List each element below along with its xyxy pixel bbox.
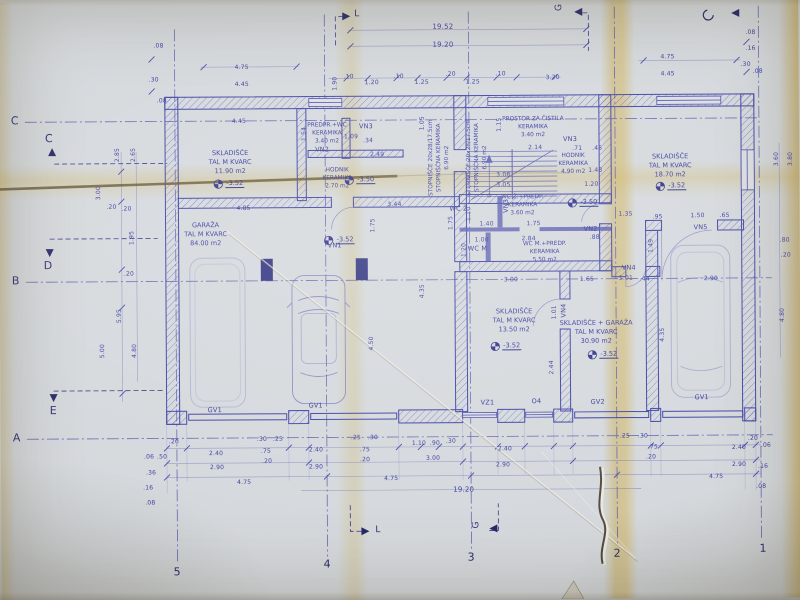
dim: 3.60 — [774, 152, 781, 166]
dim: .45 — [592, 146, 602, 153]
dim: .75 — [261, 449, 271, 456]
dim: 1.00 — [475, 237, 489, 244]
opening-tag-vn1: VN1 — [328, 242, 342, 249]
dim: 3.20 — [546, 75, 560, 82]
dim: .95 — [652, 214, 662, 221]
dim: .20 — [748, 436, 758, 443]
dim: .71 — [572, 146, 582, 153]
dim: 1.90 — [332, 77, 339, 91]
dim: .30 — [446, 439, 456, 446]
dim: 3.05 — [496, 182, 510, 189]
level-marker: -3.50 — [567, 198, 598, 208]
dim: 2.90 — [210, 465, 224, 472]
dim: 4.45 — [661, 71, 675, 78]
room-floor: STOPNIŠČNA KERAMIKA — [473, 108, 482, 208]
dim: 3.00 — [504, 277, 518, 284]
blueprint-photo: C B A C D E 5 4 3 2 1 L G L G SKLADIŠČE … — [0, 0, 800, 600]
dim: .08 — [153, 43, 163, 50]
dim: 1.09 — [344, 134, 358, 141]
room-area: 3.60 m2 — [489, 209, 555, 218]
room-name: GARAŽA — [168, 221, 244, 231]
dim: 1.50 — [690, 213, 704, 220]
room-name: SKLADIŠČE — [193, 149, 267, 159]
dim: 2.90 — [309, 464, 323, 471]
dim: .08 — [745, 30, 755, 37]
car-outline-right — [671, 245, 731, 397]
dim: .20 — [446, 72, 456, 79]
room-skladisce-1350: SKLADIŠČE TAL M KVARC 13.50 m2 — [477, 307, 551, 335]
dim: .20 — [781, 253, 791, 260]
level-marker: -3.52 — [490, 341, 521, 351]
dim-total: 19.52 — [432, 24, 453, 32]
room-floor: TAL M KVARC — [632, 161, 708, 171]
dim: 2.90 — [496, 462, 510, 469]
dim: .08 — [157, 98, 167, 105]
opening-tag-vn4: VN4 — [622, 265, 636, 272]
dim: .75 — [648, 444, 658, 451]
dim: 1.95 — [129, 231, 136, 245]
dim-total: 19.20 — [432, 42, 453, 50]
dim: 4.75 — [709, 474, 723, 481]
dim: 2.84 — [522, 236, 536, 243]
dim: .34 — [363, 138, 373, 145]
section-label-l-top: L — [354, 10, 359, 19]
dim: .16 — [143, 486, 153, 493]
dim: .80 — [780, 238, 790, 245]
paper-creases — [0, 172, 638, 565]
level-icon — [490, 341, 500, 351]
dim: 1.20 — [461, 243, 468, 257]
level-value: -3.52 — [599, 350, 618, 359]
dim: 3.00 — [96, 186, 103, 200]
opening-tag-o4: O4 — [532, 398, 542, 405]
room-name: SKLADIŠČE + GARAŽA — [548, 319, 644, 329]
dim: 1.20 — [584, 182, 598, 189]
grid-col-1: 1 — [759, 543, 766, 554]
dim: 3.44 — [387, 202, 401, 209]
room-floor: TAL M KVARC — [168, 230, 244, 240]
dim: .30 — [368, 435, 378, 442]
room-area: 30.90 m2 — [548, 337, 644, 347]
dim: .06 — [144, 455, 154, 462]
dim: 1.75 — [370, 218, 377, 232]
dim: 4.35 — [420, 284, 427, 298]
room-stopnisce-left: STOPNIŠČE 20x28/17.5cm STOPNIŠČNA KERAMI… — [427, 108, 452, 208]
dim: 2.90 — [704, 276, 718, 283]
dim: 1.10 — [466, 207, 473, 221]
dim: .25 — [351, 435, 361, 442]
dim: 4.75 — [237, 480, 251, 487]
room-floor: TAL M KVARC — [477, 316, 551, 326]
dim: 2.40 — [498, 446, 512, 453]
dim: .65 — [719, 213, 729, 220]
dim: .16 — [745, 46, 755, 53]
dim: 3.80 — [788, 152, 795, 166]
opening-tag-vn2: VN2 — [584, 226, 598, 233]
dim: 1.75 — [527, 221, 541, 228]
dim: .20 — [121, 207, 131, 214]
structural-columns — [261, 258, 368, 281]
dim: 1.35 — [618, 212, 632, 219]
dim: 4.50 — [369, 336, 376, 350]
dim: 1.40 — [480, 221, 494, 228]
dim: 2.90 — [732, 462, 746, 469]
dim: 1.05 — [420, 116, 427, 130]
room-skladisce-1190: SKLADIŠČE TAL M KVARC 11.90 m2 — [193, 149, 267, 177]
dim: .30 — [257, 437, 267, 444]
level-icon — [655, 181, 665, 191]
dim: 2.14 — [528, 145, 542, 152]
room-area: 18.70 m2 — [632, 170, 708, 180]
section-label-d: D — [44, 260, 53, 271]
dim-total: 19.20 — [453, 487, 474, 495]
dim: 4.85 — [236, 206, 250, 213]
section-label-l-bottom: L — [375, 526, 380, 535]
section-label-e: E — [50, 405, 57, 416]
dim: 5.00 — [100, 344, 107, 358]
level-icon — [567, 198, 577, 208]
room-area: 13.50 m2 — [477, 325, 551, 335]
level-value: -3.52 — [667, 182, 686, 191]
room-skladisce-garaza: SKLADIŠČE + GARAŽA TAL M KVARC 30.90 m2 — [548, 319, 644, 347]
dim: .30 — [638, 433, 648, 440]
dim: .90 — [430, 441, 440, 448]
dim: .10 — [344, 74, 354, 81]
section-label-g-bottom: G — [472, 522, 481, 529]
dim: 1.10 — [412, 441, 426, 448]
dim: 4.45 — [235, 82, 249, 89]
dim: 3.08 — [496, 172, 510, 179]
dim: 2.44 — [549, 360, 556, 374]
dim: 2.85 — [115, 148, 122, 162]
opening-tag-vn3: VN3 — [563, 136, 577, 143]
dim: 4.75 — [661, 54, 675, 61]
grid-col-4: 4 — [324, 558, 331, 569]
dim: .44 — [640, 276, 650, 283]
dim: .08 — [753, 69, 763, 76]
level-marker: -3.52 — [213, 179, 244, 189]
dim: .88 — [590, 235, 600, 242]
dim: 1.25 — [415, 80, 429, 87]
floorplan-linework — [0, 0, 800, 600]
dim: 4.35 — [660, 328, 667, 342]
opening-tag-vz1: VZ1 — [481, 399, 495, 406]
opening-tag-gv2: GV2 — [591, 399, 605, 406]
dim: 1.15 — [497, 118, 504, 132]
dim: 1.01 — [619, 276, 633, 283]
section-label-c: C — [45, 133, 53, 144]
walls — [165, 94, 756, 425]
dim: 1.20 — [365, 80, 379, 87]
dim: .10 — [496, 71, 506, 78]
dim: .20 — [169, 439, 179, 446]
dim: .08 — [145, 500, 155, 507]
level-marker: -3.50 — [344, 175, 375, 185]
dim: .06 — [761, 443, 771, 450]
room-area: 84.00 m2 — [168, 239, 244, 249]
opening-tag-gv1: GV1 — [208, 407, 222, 414]
dim: .25 — [620, 434, 630, 441]
level-value: -3.50 — [356, 176, 375, 185]
dim: .25 — [273, 437, 283, 444]
room-area: 11.90 m2 — [193, 167, 267, 177]
dim: 4.80 — [132, 344, 139, 358]
grid-col-5: 5 — [174, 566, 181, 577]
dim: 1.25 — [466, 80, 480, 87]
dim: 1.48 — [588, 168, 602, 175]
room-name: PROSTOR ZA ČISTILA — [491, 115, 575, 124]
dim: .36 — [146, 470, 156, 477]
room-floor: STOPNIŠČNA KERAMIKA — [435, 108, 444, 208]
dim: .75 — [360, 447, 370, 454]
dim: 2.40 — [732, 445, 746, 452]
dim: 4.75 — [235, 65, 249, 72]
dim: 1.75 — [448, 216, 455, 230]
opening-tag-vn3: VN3 — [503, 199, 510, 213]
dim: .30 — [149, 77, 159, 84]
dim: 3.00 — [426, 456, 440, 463]
dim: 2.65 — [131, 148, 138, 162]
dim: .50 — [157, 454, 167, 461]
room-garaza: GARAŽA TAL M KVARC 84.00 m2 — [168, 221, 244, 249]
dim: 4.75 — [384, 476, 398, 483]
room-skladisce-1870: SKLADIŠČE TAL M KVARC 18.70 m2 — [632, 152, 708, 180]
room-stopnisce-right: STOPNIŠČE 20x28/17.5cm STOPNIŠČNA KERAMI… — [465, 107, 490, 207]
room-area: 5.50 m2 — [510, 256, 580, 265]
room-wc-moski: WC M.+PREDP. KERAMIKA 5.50 m2 — [510, 240, 580, 265]
dim: 4.80 — [780, 308, 787, 322]
dim: 2.49 — [370, 152, 384, 159]
section-label-g-top: G — [555, 4, 564, 11]
dim: 1.65 — [580, 277, 594, 284]
dim: .20 — [124, 272, 134, 279]
dim: 4.45 — [232, 119, 246, 126]
dim: 1.49 — [648, 239, 655, 253]
grid-col-2: 2 — [614, 548, 621, 559]
car-outline-main — [287, 275, 351, 403]
room-floor: TAL M KVARC — [193, 158, 267, 168]
dim: .16 — [758, 464, 768, 471]
level-value: -3.50 — [579, 199, 598, 208]
dim: 1.54 — [302, 127, 309, 141]
level-value: -3.52 — [502, 342, 521, 351]
blueprint-paper: C B A C D E 5 4 3 2 1 L G L G SKLADIŠČE … — [0, 0, 800, 600]
room-wc-zenske: WC Ž.+PREDP. KERAMIKA 3.60 m2 — [489, 193, 555, 218]
opening-tag-gv1: GV1 — [309, 402, 323, 409]
dim: 2.40 — [209, 451, 223, 458]
grid-row-a: A — [13, 432, 21, 443]
opening-tag-vn2: VN2 — [315, 146, 329, 153]
level-icon — [213, 179, 223, 189]
room-name: SKLADIŠČE — [477, 307, 551, 317]
dim: 5.95 — [117, 309, 124, 323]
room-name: SKLADIŠČE — [632, 152, 708, 162]
car-outline-faint — [190, 258, 246, 407]
dim: 1.01 — [552, 305, 559, 319]
dim: .20 — [106, 205, 116, 212]
level-marker: -3.52 — [655, 181, 686, 191]
opening-tag-gv1: GV1 — [695, 394, 709, 401]
dim: .08 — [756, 484, 766, 491]
dim: .10 — [394, 74, 404, 81]
level-value: -3.52 — [225, 180, 244, 189]
dim: 2.40 — [309, 447, 323, 454]
extension-lines — [167, 422, 756, 494]
opening-tag-vn5: VN5 — [694, 224, 708, 231]
room-area: 6.90 m2 — [443, 108, 452, 208]
level-icon — [344, 175, 354, 185]
dim: .20 — [646, 454, 656, 461]
dim: .20 — [262, 459, 272, 466]
paper-tear — [561, 467, 608, 599]
grid-row-c: C — [11, 115, 19, 126]
label-wc-m: WC M — [468, 245, 487, 252]
grid-col-3: 3 — [468, 552, 475, 563]
level-icon — [587, 350, 597, 360]
opening-tag-vn3: VN3 — [359, 123, 373, 130]
dim: .30 — [741, 62, 751, 69]
level-marker: -3.52 — [587, 350, 618, 360]
opening-tag-vn4: VN4 — [560, 304, 567, 318]
grid-row-b: B — [12, 275, 20, 286]
dim: .20 — [360, 457, 370, 464]
